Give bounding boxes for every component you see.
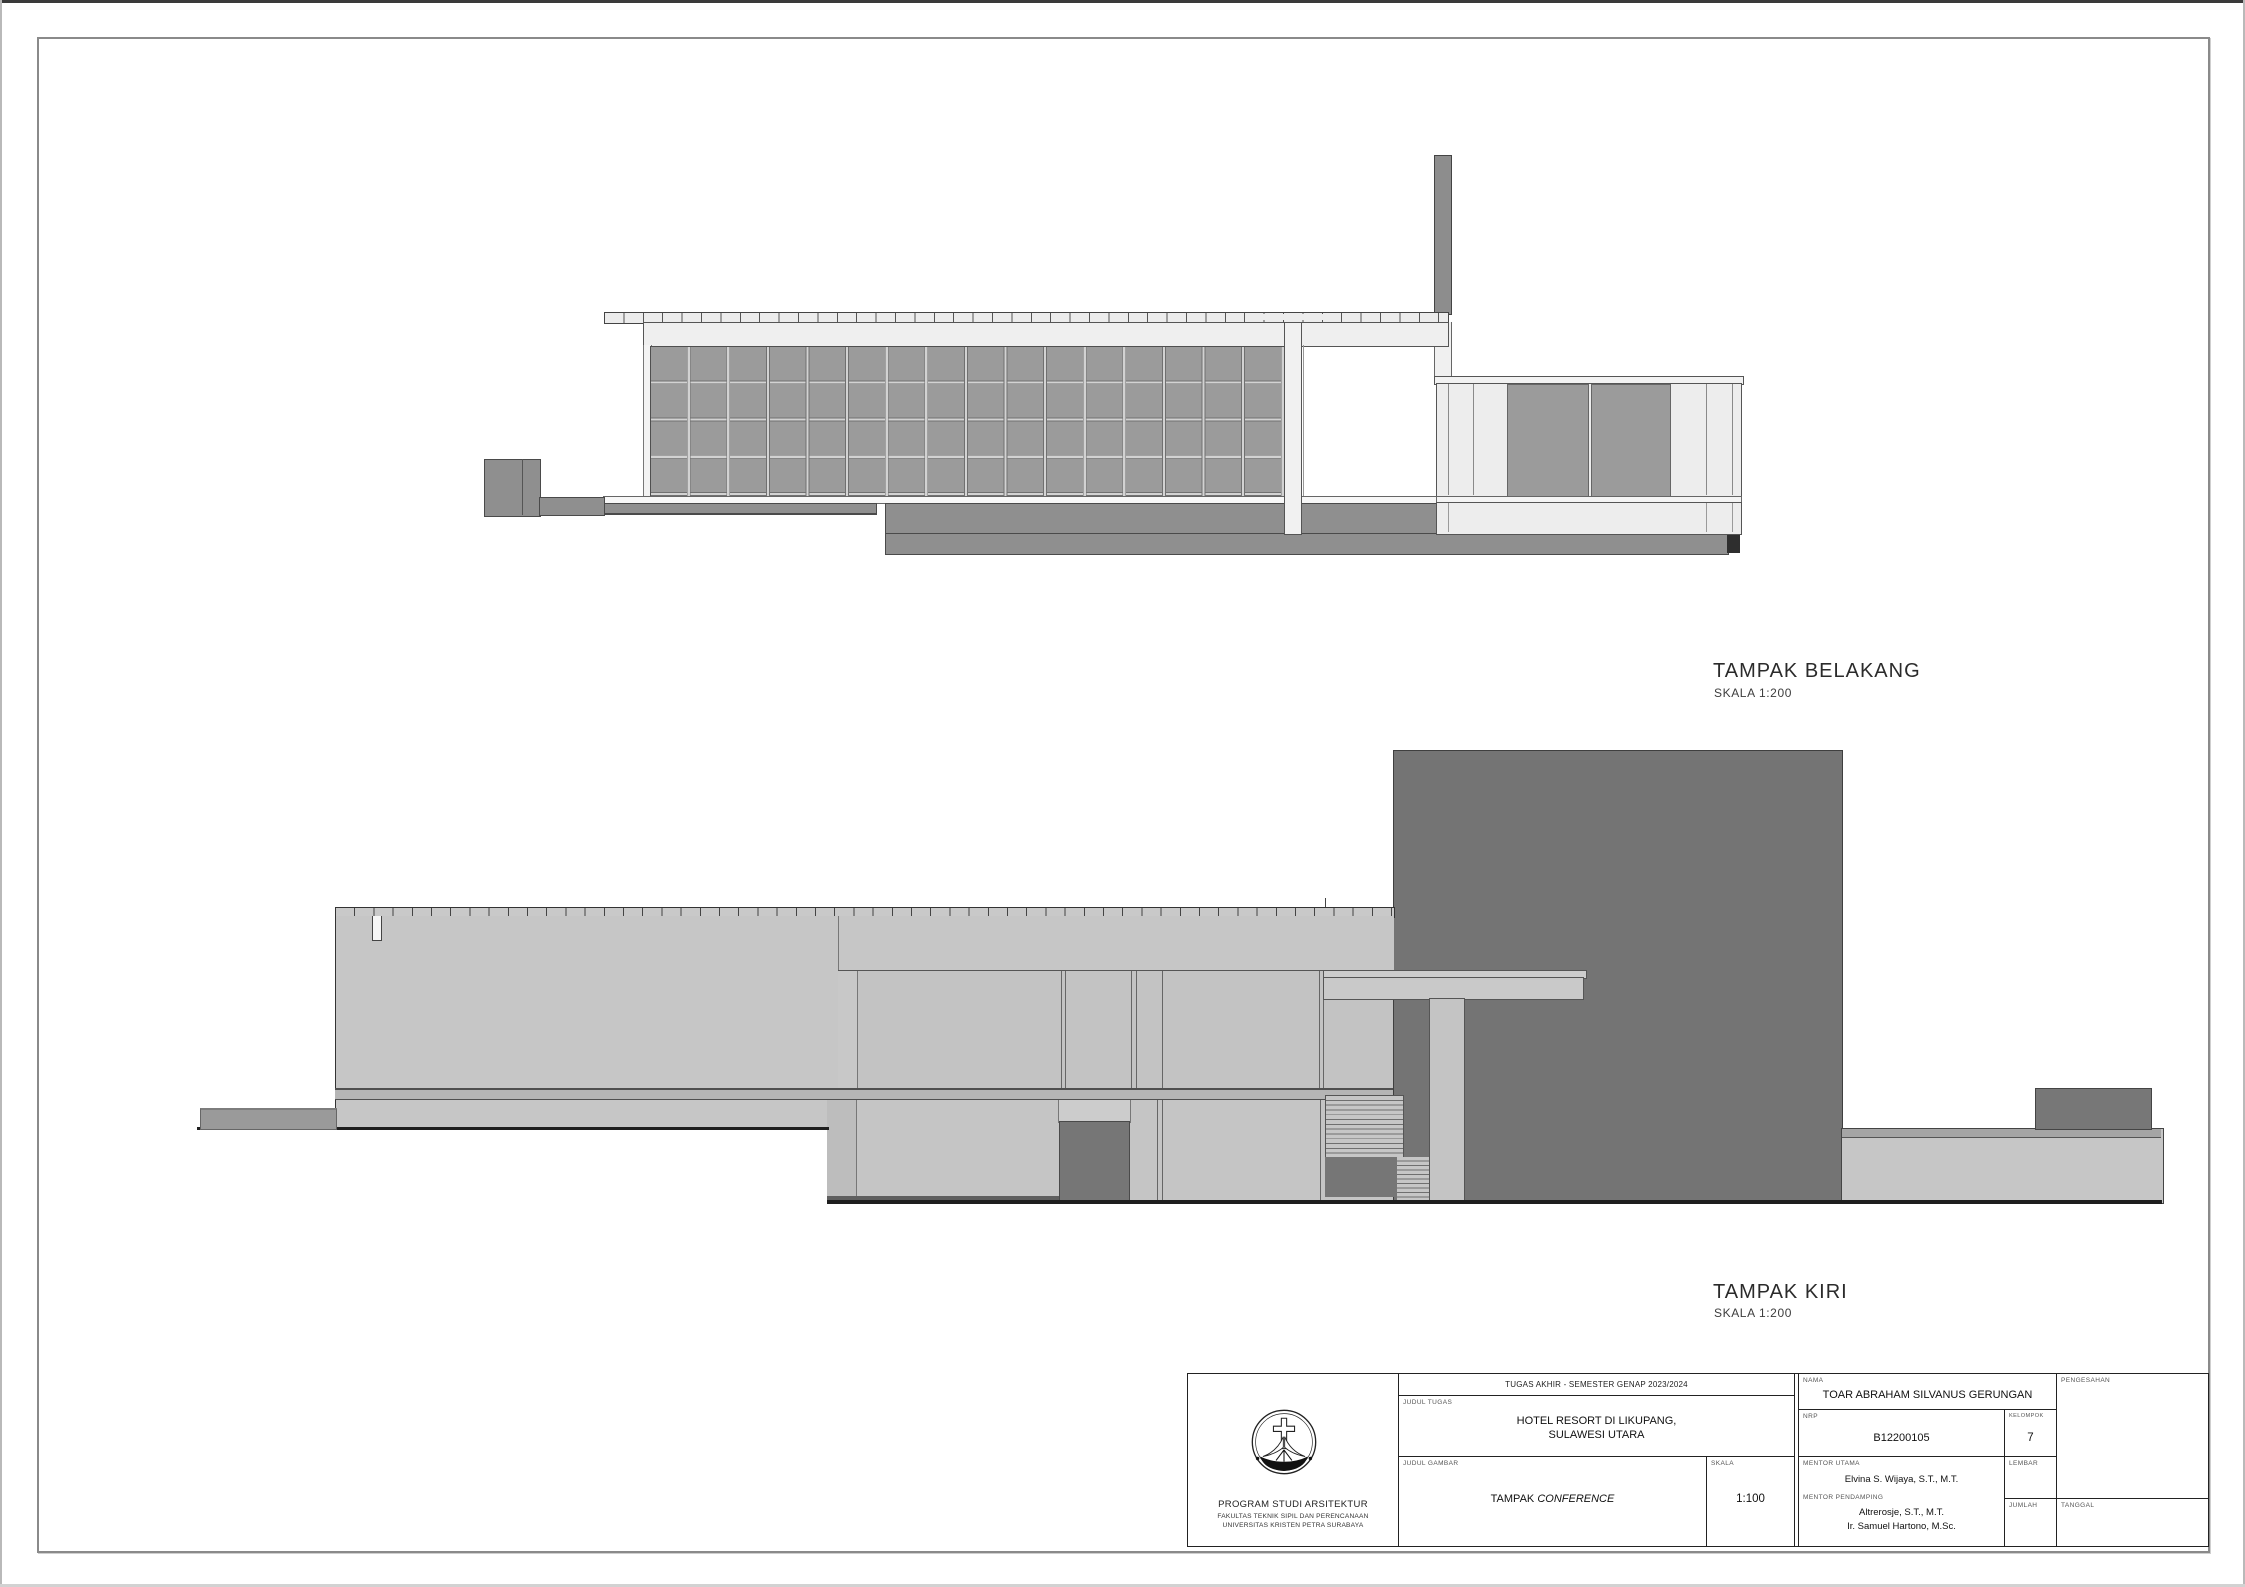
parapet-tick xyxy=(1325,898,1326,907)
jumlah-label: JUMLAH xyxy=(2009,1502,2037,1509)
annex-mullion xyxy=(1732,384,1733,495)
stair-flight-upper xyxy=(1325,1095,1404,1159)
lower-story-pier xyxy=(827,1097,857,1196)
service-block-seam xyxy=(522,459,523,515)
project-title-line2: SULAWESI UTARA xyxy=(1399,1429,1794,1441)
mullion xyxy=(1136,971,1137,1095)
kelompok-label: KELOMPOK xyxy=(2009,1413,2044,1419)
stair-flight-lower xyxy=(1397,1157,1429,1202)
screen-top-edge xyxy=(0,0,2245,3)
mullion xyxy=(1061,971,1062,1095)
lembar-cell: LEMBAR xyxy=(2004,1456,2056,1498)
kelompok-value: 7 xyxy=(2005,1432,2056,1444)
drawing-title: TAMPAK CONFERENCE xyxy=(1399,1493,1706,1505)
open-bay-inner-edge xyxy=(1303,345,1304,502)
screen-left-edge xyxy=(0,0,2,1587)
petra-university-logo xyxy=(1251,1406,1317,1478)
judul-tugas-cell: JUDUL TUGAS HOTEL RESORT DI LIKUPANG, SU… xyxy=(1398,1395,1794,1456)
pengesahan-label: PENGESAHAN xyxy=(2061,1377,2110,1384)
roof-drain xyxy=(372,916,382,941)
mullion xyxy=(1131,971,1132,1095)
logo-cell: PROGRAM STUDI ARSITEKTUR FAKULTAS TEKNIK… xyxy=(1188,1374,1398,1543)
mentor-utama-name: Elvina S. Wijaya, S.T., M.T. xyxy=(1799,1474,2004,1485)
institution-faculty: FAKULTAS TEKNIK SIPIL DAN PERENCANAAN xyxy=(1188,1513,1398,1520)
mentor-pendamping-2: Ir. Samuel Hartono, M.Sc. xyxy=(1799,1521,2004,1532)
wing-upper-band xyxy=(838,916,1394,971)
judul-gambar-label: JUDUL GAMBAR xyxy=(1403,1460,1458,1467)
drawing-title-prefix: TAMPAK xyxy=(1491,1493,1538,1505)
entry-ramp xyxy=(200,1108,337,1130)
curtain-wall-pier xyxy=(838,971,858,1095)
left-elevation-scale: SKALA 1:200 xyxy=(1714,1306,1792,1320)
mentor-pendamping-1: Altrerosje, S.T., M.T. xyxy=(1799,1507,2004,1518)
entry-canopy xyxy=(1323,977,1584,1000)
skala-label: SKALA xyxy=(1711,1460,1734,1467)
service-block xyxy=(484,459,541,517)
judul-gambar-cell: JUDUL GAMBAR TAMPAK CONFERENCE xyxy=(1398,1456,1706,1546)
nama-cell: NAMA TOAR ABRAHAM SILVANUS GERUNGAN xyxy=(1798,1374,2056,1409)
assignment-header: TUGAS AKHIR - SEMESTER GENAP 2023/2024 xyxy=(1399,1380,1794,1389)
platform-top-band xyxy=(1842,1129,2161,1138)
mullion xyxy=(1157,1097,1158,1202)
drawing-sheet: TAMPAK BELAKANG SKALA 1:200 xyxy=(0,0,2245,1587)
chimney xyxy=(1434,155,1452,315)
lembar-label: LEMBAR xyxy=(2009,1460,2038,1467)
back-elevation-title: TAMPAK BELAKANG xyxy=(1713,660,1921,683)
annex-mullion xyxy=(1706,384,1707,495)
curtain-wall-story xyxy=(838,970,1393,1095)
service-block-step xyxy=(539,497,605,516)
kelompok-cell: KELOMPOK 7 xyxy=(2004,1409,2056,1456)
mentor-cell: MENTOR UTAMA Elvina S. Wijaya, S.T., M.T… xyxy=(1798,1456,2004,1546)
annex-gray-panel-1 xyxy=(1507,384,1589,497)
ground-line-main xyxy=(827,1200,2162,1204)
roof-fascia xyxy=(643,322,1449,347)
skala-value: 1:100 xyxy=(1707,1493,1794,1505)
mullion xyxy=(1162,1097,1163,1202)
jumlah-cell: JUMLAH xyxy=(2004,1498,2056,1546)
canopy-column xyxy=(1429,998,1465,1204)
project-title-line1: HOTEL RESORT DI LIKUPANG, xyxy=(1399,1415,1794,1427)
structural-pier xyxy=(1284,322,1302,535)
annex-deck xyxy=(1436,502,1742,535)
back-elevation-scale: SKALA 1:200 xyxy=(1714,686,1792,700)
annex-deck-joint xyxy=(1706,503,1707,532)
rear-platform xyxy=(1841,1128,2164,1204)
judul-tugas-label: JUDUL TUGAS xyxy=(1403,1399,1452,1406)
nrp-cell: NRP B12200105 xyxy=(1798,1409,2004,1456)
floor-slab-band xyxy=(335,1088,1393,1100)
title-block: PROGRAM STUDI ARSITEKTUR FAKULTAS TEKNIK… xyxy=(1187,1373,2209,1547)
dark-doorway xyxy=(1059,1121,1130,1204)
stair-landing-dark xyxy=(1325,1157,1397,1197)
roof-band-plain-segment xyxy=(1252,314,1324,320)
annex-deck-joint xyxy=(1732,503,1733,532)
annex-mullion xyxy=(1473,384,1474,495)
nama-label: NAMA xyxy=(1803,1377,1823,1384)
institution-program: PROGRAM STUDI ARSITEKTUR xyxy=(1188,1499,1398,1510)
lower-story xyxy=(827,1097,1393,1202)
pengesahan-cell: PENGESAHAN xyxy=(2056,1374,2208,1498)
plinth-end-cap xyxy=(1727,533,1740,553)
base-plinth-lower xyxy=(885,533,1729,555)
mullion xyxy=(1319,971,1320,1095)
door-transom xyxy=(1058,1097,1131,1123)
tanggal-cell: TANGGAL xyxy=(2056,1498,2208,1546)
nrp-label: NRP xyxy=(1803,1413,1818,1420)
annex-deck-joint xyxy=(1448,503,1449,532)
annex-mullion xyxy=(1448,384,1449,495)
screen-block-facade-grid xyxy=(650,346,1286,497)
sheet-border-frame xyxy=(37,37,2210,1553)
drawing-title-name: CONFERENCE xyxy=(1537,1493,1614,1505)
mullion xyxy=(1065,971,1066,1095)
annex-gray-panel-2 xyxy=(1591,384,1671,497)
skala-cell: SKALA 1:100 xyxy=(1706,1456,1794,1546)
left-elevation-title: TAMPAK KIRI xyxy=(1713,1281,1848,1304)
institution-university: UNIVERSITAS KRISTEN PETRA SURABAYA xyxy=(1188,1522,1398,1529)
rooftop-unit xyxy=(2035,1088,2152,1130)
tanggal-label: TANGGAL xyxy=(2061,1502,2094,1509)
base-plinth-middle xyxy=(885,503,1438,535)
glass-annex xyxy=(1436,383,1742,498)
mentor-utama-label: MENTOR UTAMA xyxy=(1803,1460,1860,1467)
student-id: B12200105 xyxy=(1799,1432,2004,1444)
header-cell: TUGAS AKHIR - SEMESTER GENAP 2023/2024 xyxy=(1398,1374,1794,1395)
mentor-pendamping-label: MENTOR PENDAMPING xyxy=(1803,1494,1883,1501)
student-name: TOAR ABRAHAM SILVANUS GERUNGAN xyxy=(1799,1389,2056,1401)
mullion xyxy=(1320,1097,1321,1202)
mullion xyxy=(1162,971,1163,1095)
